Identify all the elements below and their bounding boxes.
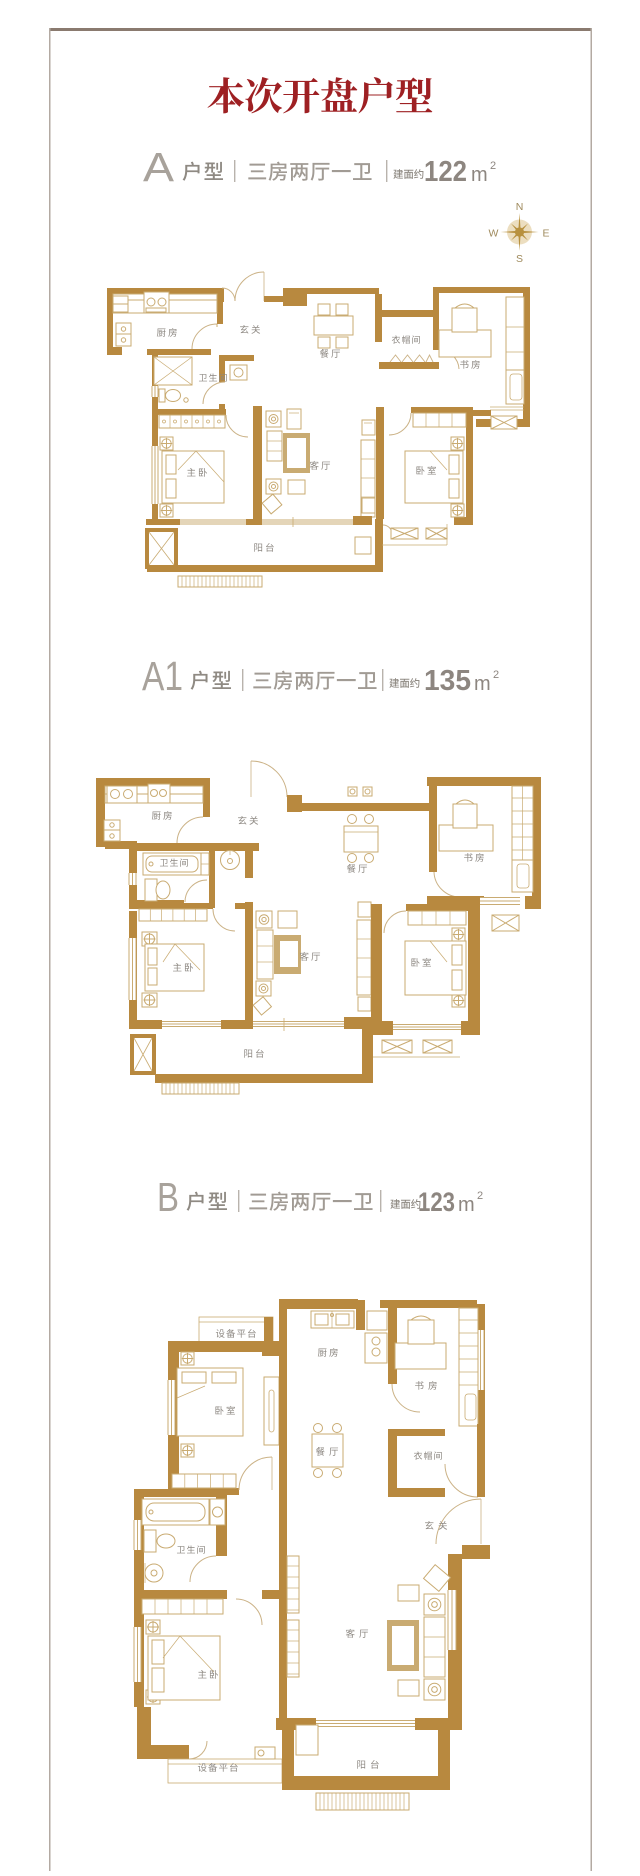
svg-text:E: E — [542, 228, 549, 240]
svg-text:S: S — [516, 253, 523, 265]
svg-text:m: m — [458, 1194, 475, 1216]
svg-text:123: 123 — [418, 1187, 455, 1217]
svg-text:N: N — [516, 201, 524, 213]
svg-text:A: A — [143, 144, 175, 190]
svg-text:W: W — [489, 228, 499, 240]
svg-text:2: 2 — [493, 669, 499, 681]
svg-text:2: 2 — [490, 160, 496, 172]
svg-text:135: 135 — [424, 665, 471, 697]
svg-text:A1: A1 — [142, 653, 183, 699]
svg-text:m: m — [474, 673, 491, 695]
svg-text:2: 2 — [477, 1190, 483, 1202]
svg-text:122: 122 — [424, 156, 467, 188]
svg-text:B: B — [157, 1174, 179, 1220]
svg-text:m: m — [471, 164, 488, 186]
